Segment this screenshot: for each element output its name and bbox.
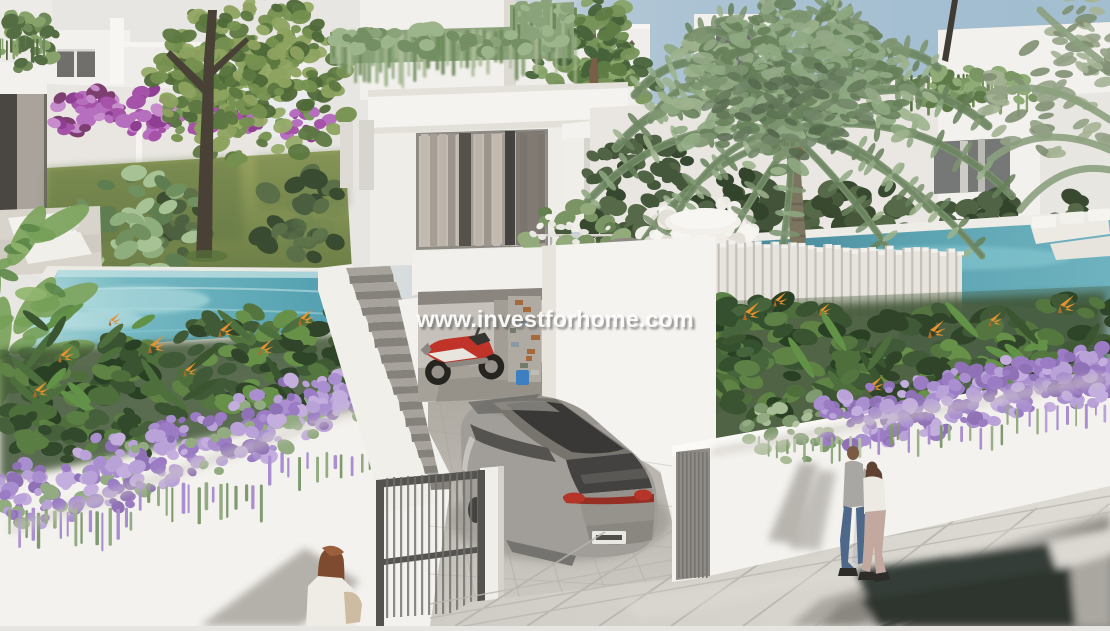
svg-text:www.investforhome.com: www.investforhome.com [415,306,693,332]
